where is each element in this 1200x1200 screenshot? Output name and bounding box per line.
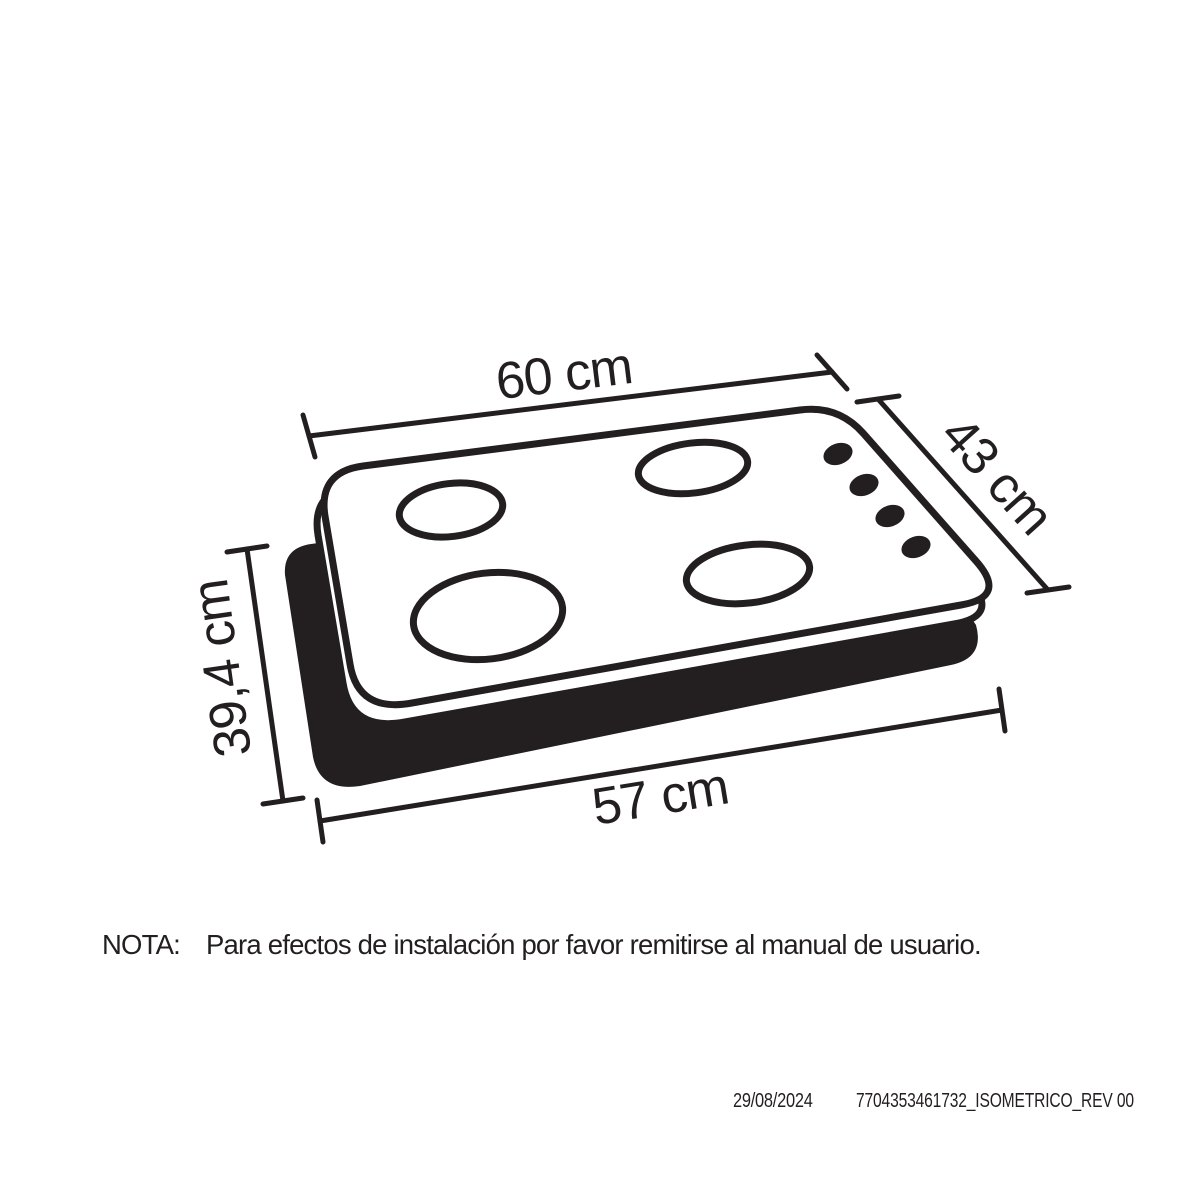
cooktop-isometric-diagram: 60 cm 43 cm 39,4 cm 57 cm bbox=[0, 0, 1200, 1200]
dimension-label-43cm: 43 cm bbox=[929, 405, 1064, 545]
installation-note: NOTA: Para efectos de instalación por fa… bbox=[102, 925, 981, 965]
technical-drawing-page: 60 cm 43 cm 39,4 cm 57 cm NOTA: Para efe… bbox=[0, 0, 1200, 1200]
dimension-tick bbox=[317, 800, 323, 842]
dimension-label-39-4cm: 39,4 cm bbox=[181, 576, 263, 760]
dimension-tick bbox=[999, 689, 1005, 731]
dimension-tick bbox=[263, 798, 303, 804]
dimension-label-57cm: 57 cm bbox=[588, 758, 732, 837]
dimension-line bbox=[247, 549, 283, 801]
dimension-tick bbox=[227, 546, 267, 552]
note-label: NOTA: bbox=[102, 925, 180, 965]
note-text: Para efectos de instalación por favor re… bbox=[206, 925, 981, 965]
dimension-cutout-depth: 39,4 cm bbox=[181, 546, 303, 804]
footer-reference: 7704353461732_ISOMETRICO_REV 00 bbox=[856, 1090, 1134, 1113]
dimension-tick bbox=[1027, 587, 1069, 593]
dimension-tick bbox=[857, 396, 899, 402]
footer-date: 29/08/2024 bbox=[733, 1090, 813, 1113]
drawing-footer: 29/08/2024 7704353461732_ISOMETRICO_REV … bbox=[733, 1090, 1200, 1113]
